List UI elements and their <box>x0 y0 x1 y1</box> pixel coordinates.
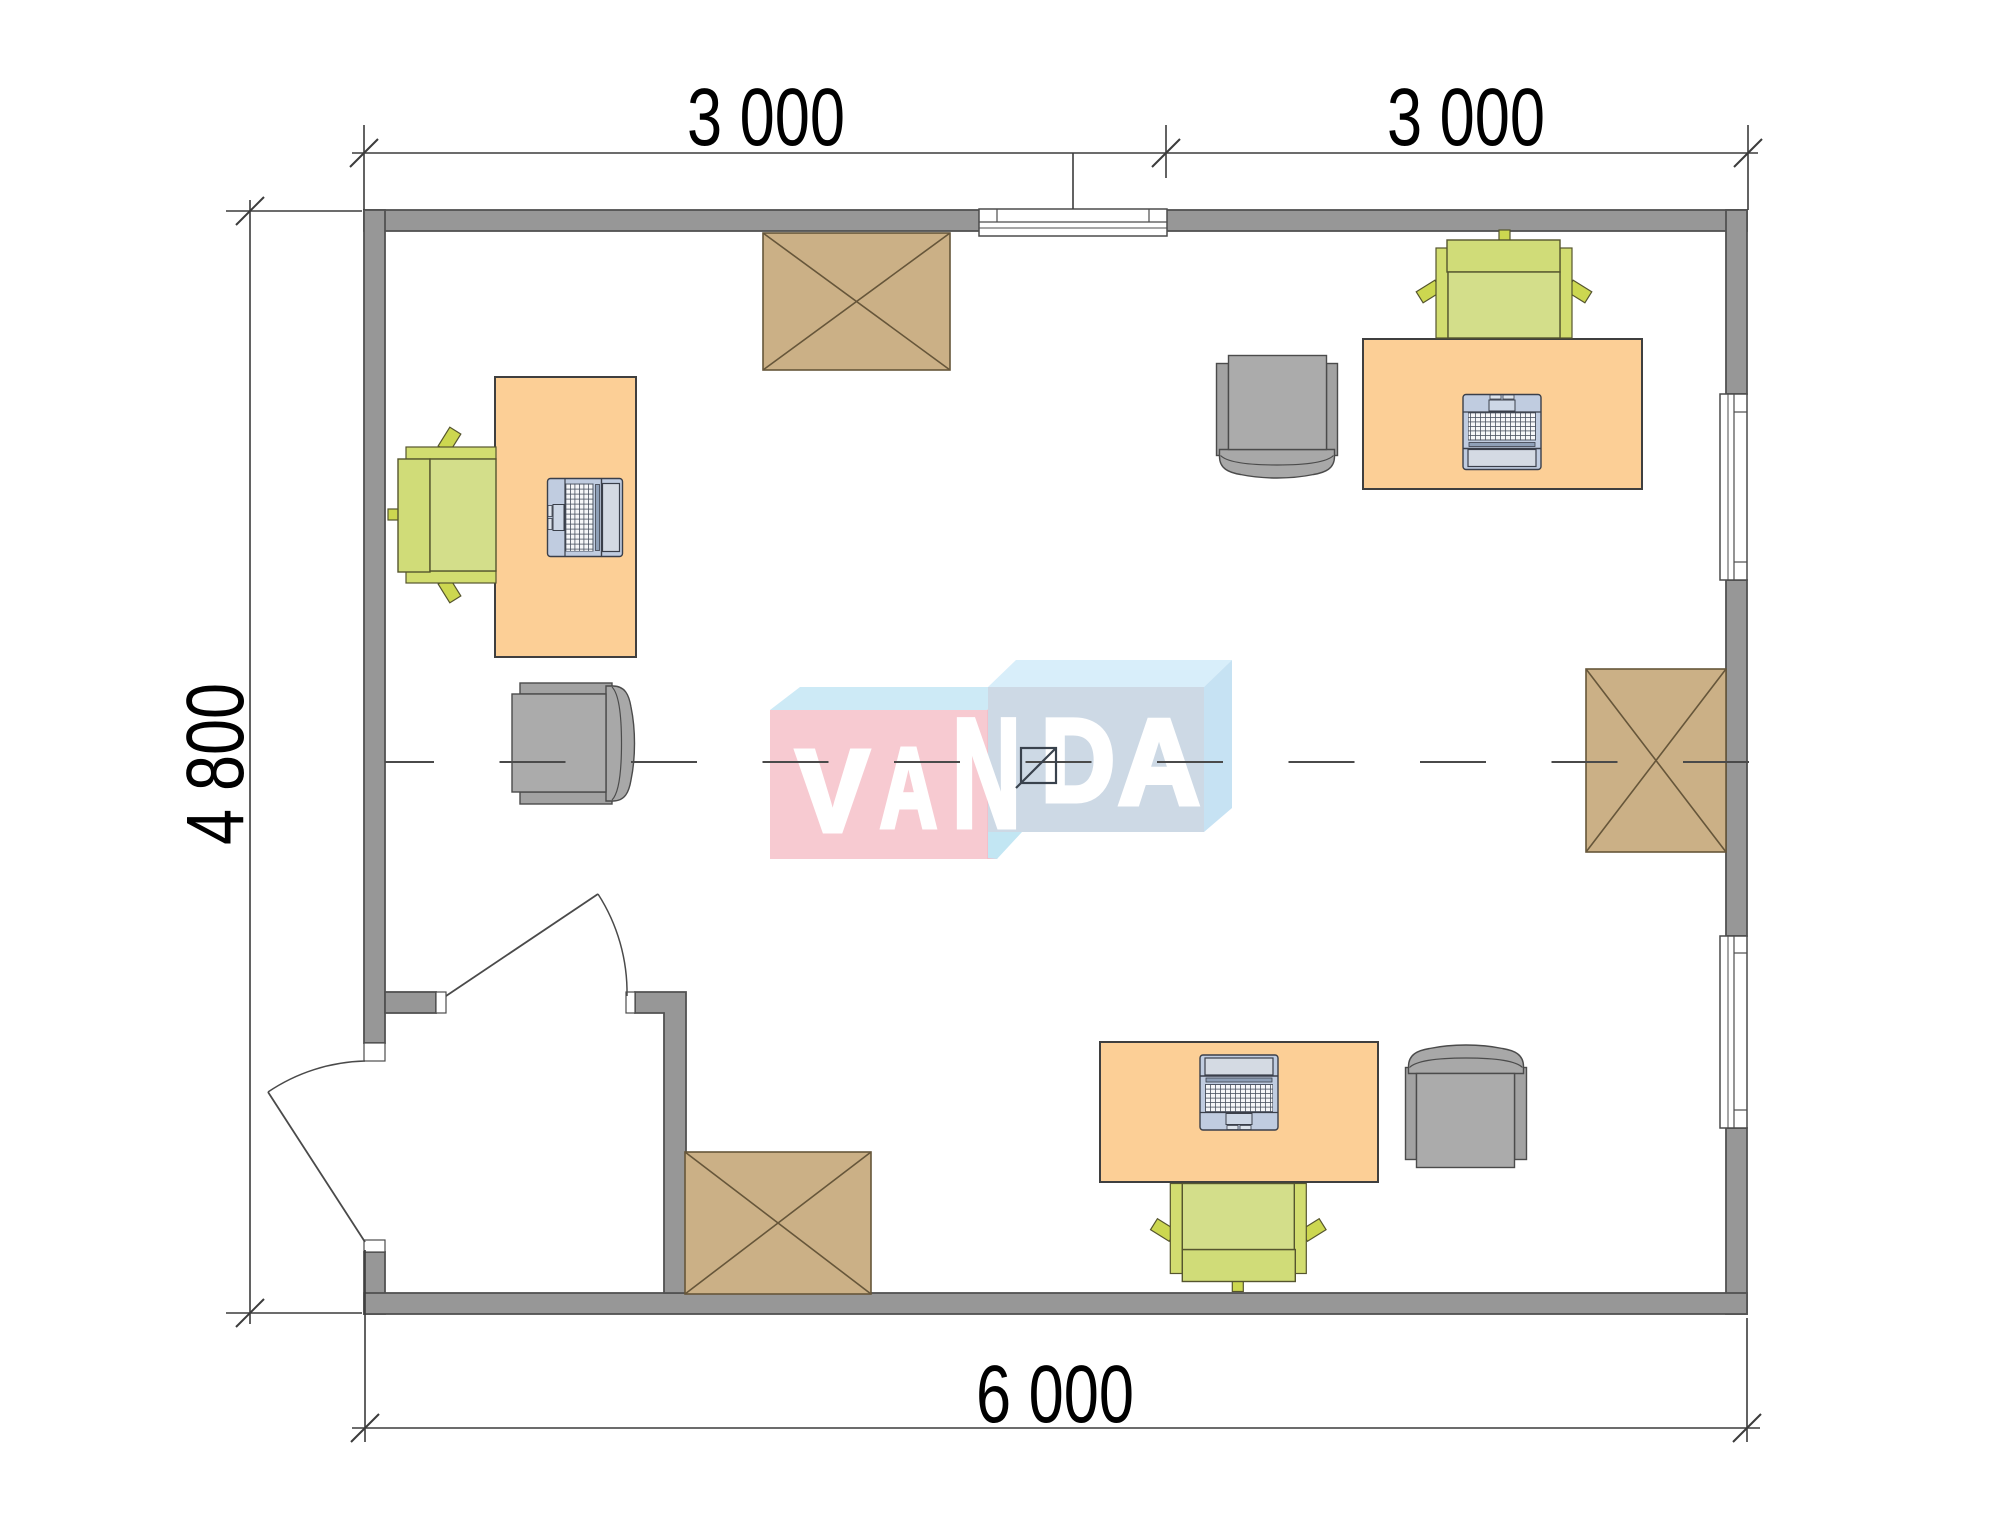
svg-text:V: V <box>796 726 869 856</box>
svg-text:6 000: 6 000 <box>976 1349 1134 1440</box>
svg-text:3 000: 3 000 <box>687 72 845 163</box>
svg-text:4 800: 4 800 <box>170 683 261 845</box>
svg-text:3 000: 3 000 <box>1387 72 1545 163</box>
svg-text:N: N <box>952 687 1021 861</box>
svg-text:A: A <box>880 725 937 851</box>
